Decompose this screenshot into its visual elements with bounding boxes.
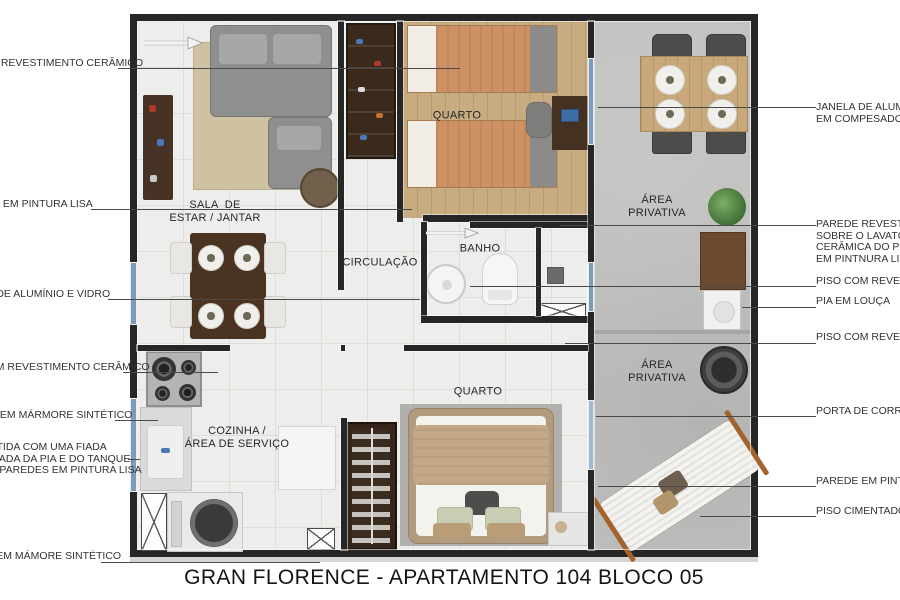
floor-plan-page: QUARTO SALA DE ESTAR / JANTAR CIRCULAÇÃO… — [0, 0, 900, 600]
sofa-cushion — [273, 34, 321, 64]
shoe — [376, 113, 383, 118]
leader-line — [700, 516, 816, 517]
bed-sheet — [408, 121, 436, 187]
entry-door-arrow-icon — [143, 35, 205, 51]
outdoor-counter — [700, 232, 746, 290]
room-label-banho: BANHO — [460, 243, 501, 256]
double-bed — [408, 408, 554, 544]
plate — [234, 245, 260, 271]
annotation-right-wall-lavatory: PAREDE REVESTIDA CO SOBRE O LAVATÓRIO. R… — [816, 219, 900, 265]
nightstand — [548, 512, 588, 546]
leader-line — [470, 286, 816, 287]
annotation-left-aluminum-glass: A DE ALUMÍNIO E VIDRO — [0, 289, 110, 301]
room-label-quarto-bottom: QUARTO — [454, 386, 502, 399]
private-area-divider — [594, 330, 751, 334]
room-label-area-privativa-mid: ÁREA PRIVATIVA — [628, 359, 686, 385]
bathroom-sink — [426, 264, 466, 304]
wall — [338, 21, 344, 290]
window-aluminum-glass — [130, 262, 137, 325]
room-label-cozinha: COZINHA / ÁREA DE SERVIÇO — [185, 425, 290, 451]
wall — [421, 316, 588, 323]
leader-line — [101, 562, 320, 563]
wall — [341, 345, 345, 351]
barbecue-grill — [700, 346, 748, 394]
dining-table-indoor — [190, 233, 266, 339]
wall — [341, 418, 347, 550]
wall — [536, 228, 541, 316]
annotation-left-ceramic-kitchen: COM REVESTIMENTO CERÂMICO — [0, 362, 150, 374]
sofa-cushion — [277, 126, 321, 150]
bed-sheet — [408, 26, 436, 92]
wall — [397, 21, 403, 222]
bed-blanket — [436, 121, 530, 187]
washing-machine — [167, 492, 243, 552]
wall — [423, 215, 588, 222]
leader-line — [596, 416, 816, 417]
annotation-left-wall-course: E REVESTIDA COM UMA FIADA E A BANCADA DA… — [0, 442, 142, 477]
window-aluminum-glass — [588, 58, 594, 145]
leader-line — [598, 486, 816, 487]
plate — [707, 65, 737, 95]
sliding-door — [588, 400, 594, 470]
plan-title: GRAN FLORENCE - APARTAMENTO 104 BLOCO 05 — [0, 566, 894, 590]
shoe — [374, 61, 381, 66]
decor-dot — [157, 139, 164, 146]
sink-box-symbol — [307, 528, 335, 550]
sofa-cushion — [219, 34, 267, 64]
annotation-left-marble-counter: DA EM MÁRMORE SINTÉTICO — [0, 410, 132, 422]
dining-chair — [264, 296, 286, 328]
annotation-right-sliding-door: PORTA DE CORRER EM — [816, 406, 900, 418]
wardrobe-rail — [371, 428, 373, 544]
plate — [198, 303, 224, 329]
dining-chair — [170, 242, 192, 274]
bed-pillow — [433, 523, 471, 539]
plate — [707, 99, 737, 129]
bed-blanket — [413, 425, 549, 485]
stove-burner — [152, 357, 176, 381]
annotation-right-floor-coating-1: PISO COM REVESTIMEN — [816, 276, 900, 288]
plate — [234, 303, 260, 329]
room-label-quarto-top: QUARTO — [433, 110, 481, 123]
washer-drum — [190, 499, 238, 547]
leader-line — [565, 343, 816, 344]
dining-chair — [264, 242, 286, 274]
room-label-circulacao: CIRCULAÇÃO — [342, 257, 417, 270]
annotation-left-tank: NQUE EM MÁMORE SINTÉTICO — [0, 551, 121, 563]
wall — [137, 345, 230, 351]
decor-dot — [150, 175, 157, 182]
leader-line — [118, 68, 460, 69]
annotation-left-ceramic-top: OM REVESTIMENTO CERÂMICO — [0, 58, 143, 70]
decor-dot — [149, 105, 156, 112]
leader-line — [108, 299, 420, 300]
plate — [655, 65, 685, 95]
kitchen-sink — [147, 425, 184, 479]
dining-chair — [170, 296, 192, 328]
bathroom-door-arrow-icon — [425, 226, 481, 240]
bed-blanket — [436, 26, 530, 92]
leader-line — [598, 107, 816, 108]
shoe-rack — [346, 23, 396, 159]
annotation-right-wall-paint: PAREDE EM PINTURA L — [816, 476, 900, 488]
potted-plant — [708, 188, 746, 226]
shoe — [356, 39, 363, 44]
stove-burner — [179, 384, 196, 401]
leader-line — [560, 225, 816, 226]
single-bed-1 — [407, 25, 557, 93]
stove-burner — [155, 386, 170, 401]
leader-line — [742, 307, 816, 308]
stove — [146, 351, 202, 407]
desk — [552, 96, 588, 150]
open-wardrobe — [345, 422, 397, 550]
outdoor-dining-table — [640, 56, 748, 132]
annotation-right-floor-coating-2: PISO COM REVESTIME — [816, 332, 900, 344]
annotation-right-window: JANELA DE ALUMÍNIO E EM COMPESADO DE MA — [816, 102, 900, 125]
bed-pillow — [487, 523, 525, 539]
annotation-left-smooth-paint: E EM PINTURA LISA — [0, 199, 93, 211]
laundry-tank-symbol — [141, 493, 167, 551]
window-aluminum-glass — [588, 262, 594, 312]
shoe — [360, 135, 367, 140]
room-label-area-privativa-top: ÁREA PRIVATIVA — [628, 194, 686, 220]
round-side-table — [300, 168, 340, 208]
room-label-sala: SALA DE ESTAR / JANTAR — [169, 199, 260, 225]
desk-chair — [526, 102, 552, 138]
washer-panel — [171, 501, 182, 547]
tv-stand — [143, 95, 173, 200]
annotation-right-cement-floor: PISO CIMENTADO E / O — [816, 506, 900, 518]
shoe — [358, 87, 365, 92]
outdoor-sink — [703, 290, 741, 330]
sofa — [210, 25, 332, 117]
wall — [404, 345, 588, 351]
laptop — [561, 109, 579, 122]
plate — [655, 99, 685, 129]
plate — [198, 245, 224, 271]
shower-drain — [547, 267, 564, 284]
annotation-right-china-sink: PIA EM LOUÇA — [816, 296, 890, 308]
bed-pillow — [530, 26, 556, 92]
toilet — [482, 253, 518, 305]
